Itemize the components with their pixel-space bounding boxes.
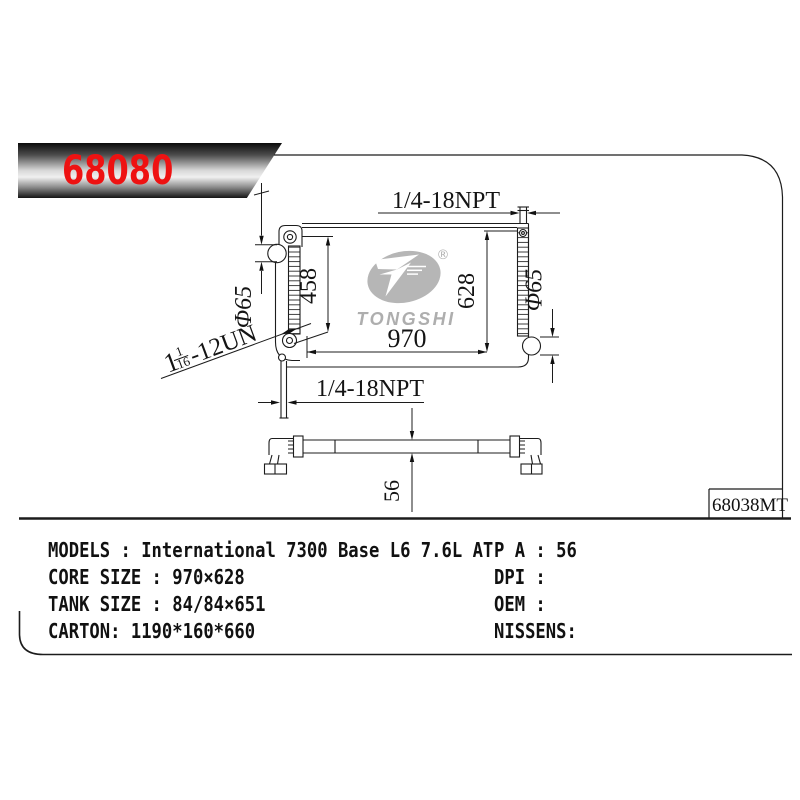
dim-core-height: 628	[454, 273, 480, 309]
filler-neck	[268, 244, 286, 262]
spec-models: MODELS : International 7300 Base L6 7.6L…	[48, 538, 493, 562]
catalog-page: 68080 ® TONGSHI 68038MT	[0, 0, 800, 800]
dim-outlet-diameter: Φ65	[522, 269, 548, 311]
dim-bottom-fitting: 1/4-18NPT	[316, 376, 424, 402]
thread-suffix: -12UN	[186, 320, 260, 369]
dim-thread-label: 1 1 16 -12UN	[160, 317, 261, 379]
spec-tank-size: TANK SIZE : 84/84×651	[48, 592, 265, 616]
depth-dimension	[410, 408, 414, 512]
cooler-fitting	[283, 334, 297, 348]
tongshi-watermark: ® TONGSHI	[356, 244, 455, 329]
dimension-labels: 1/4-18NPT 1/4-18NPT 458 628 970 Φ65 Φ65 …	[160, 188, 548, 502]
dim-mount-span: 458	[296, 268, 322, 304]
spec-carton: CARTON: 1190*160*660	[48, 619, 255, 643]
outlet-pipe	[523, 337, 541, 355]
spec-dpi: DPI :	[494, 565, 546, 589]
spec-core-size: CORE SIZE : 970×628	[48, 565, 245, 589]
dim-depth: 56	[379, 480, 404, 502]
top-fitting-pipe	[518, 207, 530, 224]
ref-code: 68038MT	[712, 495, 788, 516]
spec-pa: P A : 56	[494, 538, 577, 562]
technical-drawing: ® TONGSHI 68038MT	[0, 0, 800, 800]
spec-oem: OEM :	[494, 592, 546, 616]
drain-pipe	[280, 361, 289, 418]
dim-core-width: 970	[388, 324, 427, 353]
spec-nissens: NISSENS:	[494, 619, 577, 643]
radiator-side-view	[265, 436, 543, 474]
dimension-annotations	[161, 183, 560, 405]
registered-mark: ®	[437, 248, 450, 263]
dim-top-fitting: 1/4-18NPT	[392, 188, 500, 214]
